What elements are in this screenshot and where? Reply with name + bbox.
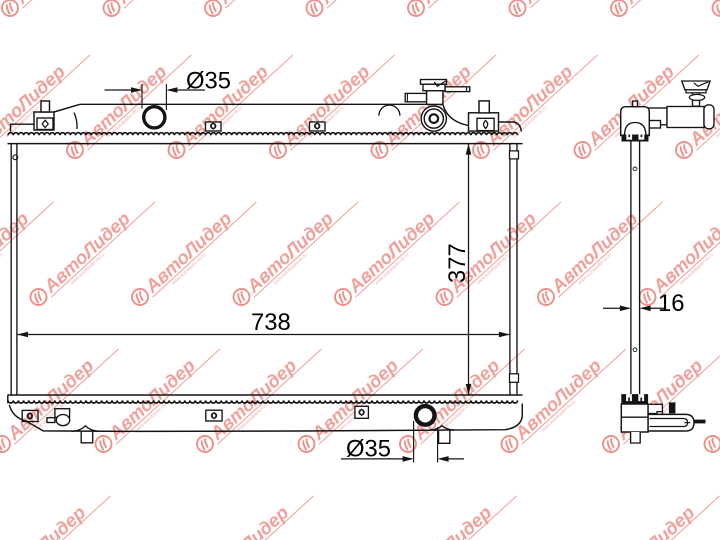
svg-text:Ø35: Ø35	[346, 436, 391, 463]
svg-text:16: 16	[658, 290, 684, 317]
svg-text:377: 377	[444, 243, 471, 283]
svg-text:738: 738	[251, 309, 291, 336]
svg-text:Ø35: Ø35	[186, 68, 231, 95]
